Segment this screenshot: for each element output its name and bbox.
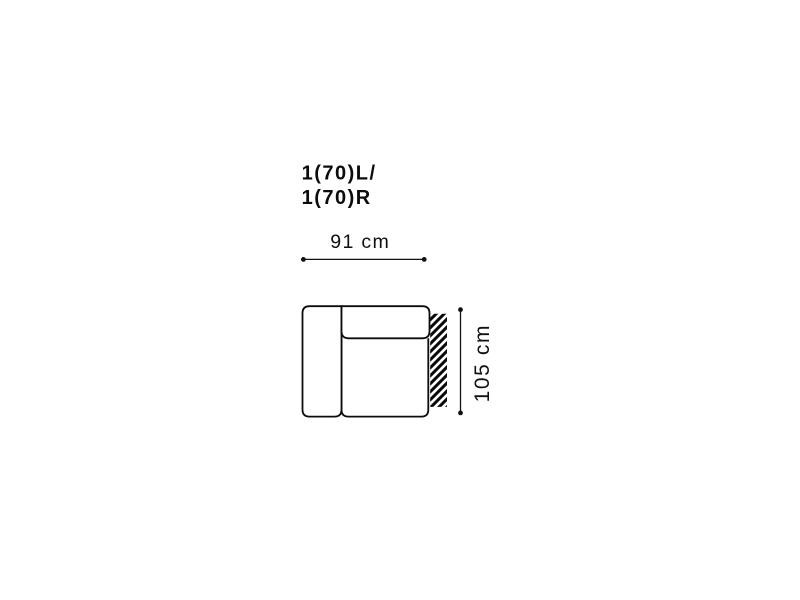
- svg-text:91 cm: 91 cm: [330, 231, 390, 253]
- svg-text:105 cm: 105 cm: [471, 324, 494, 402]
- svg-text:1(70)R: 1(70)R: [302, 187, 372, 209]
- svg-text:1(70)L/: 1(70)L/: [302, 163, 377, 185]
